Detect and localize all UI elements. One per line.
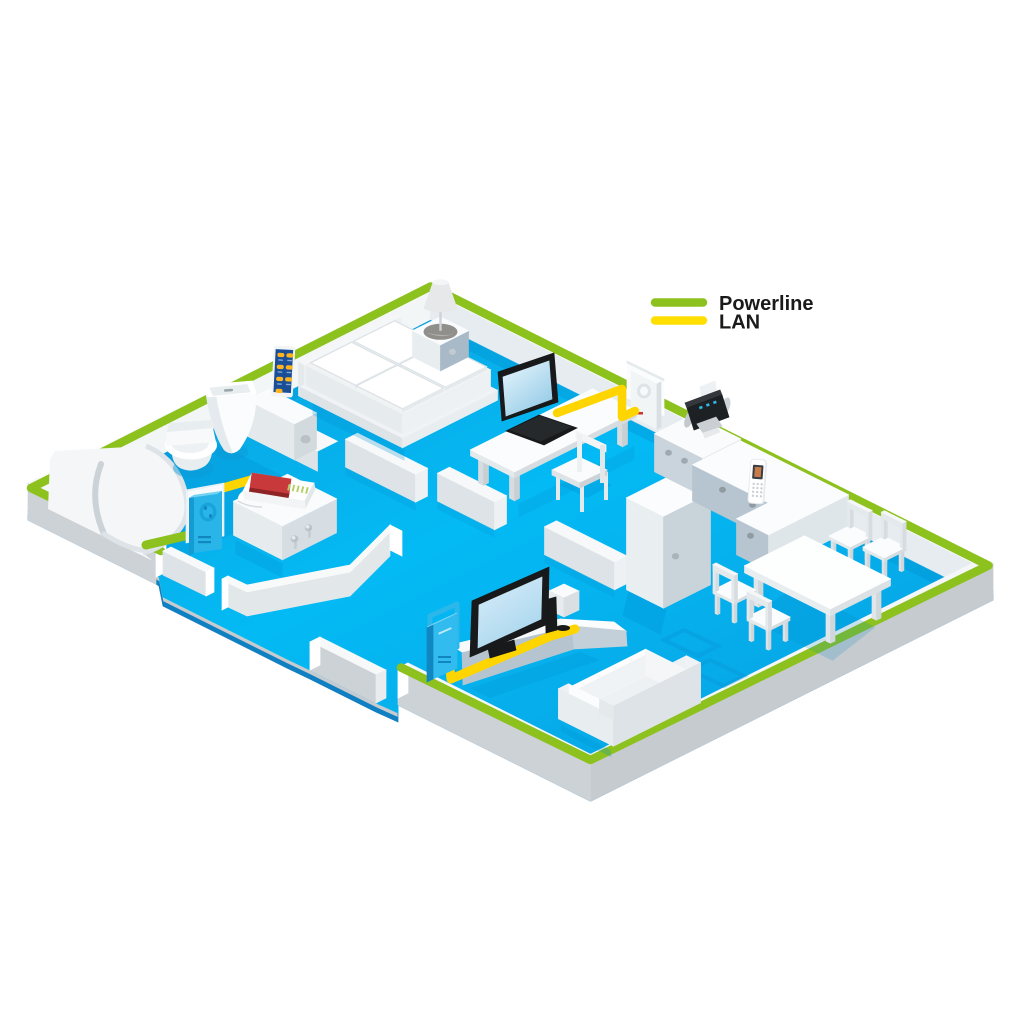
- svg-text:LAN: LAN: [719, 312, 760, 334]
